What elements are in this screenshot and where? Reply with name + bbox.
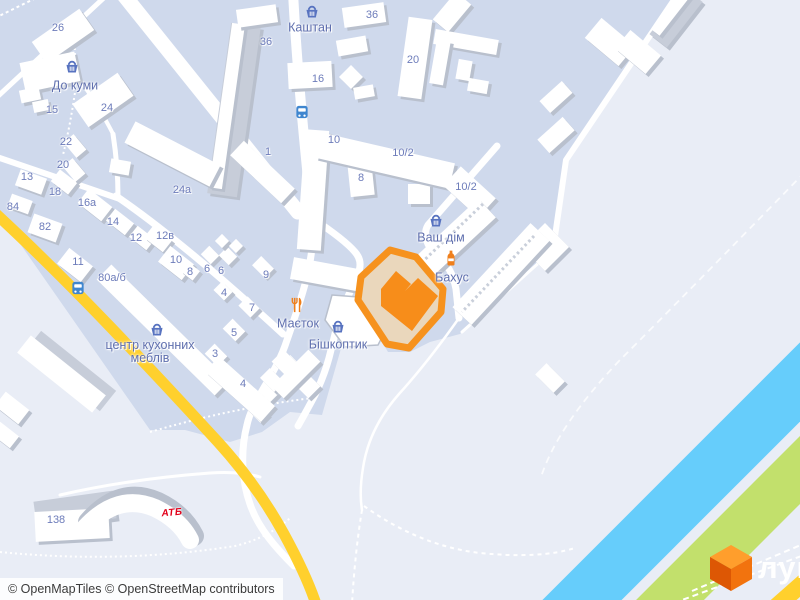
house-number: 18 [49,186,61,198]
lun-logo[interactable]: лун [708,543,800,593]
house-number: 12в [156,230,174,242]
house-number: 20 [57,159,69,171]
house-number: 10 [328,134,340,146]
labels-layer: 263636241516201010/210/282220131816а8482… [0,0,800,600]
house-number: 11 [72,256,83,268]
poi-label-bakhus[interactable]: Бахус [435,272,469,285]
attribution-text: © OpenMapTiles © OpenStreetMap contribut… [8,582,275,596]
restaurant-icon[interactable] [289,297,306,314]
basket-icon[interactable] [304,4,321,21]
lun-cube-icon [708,543,754,593]
house-number: 15 [46,104,58,116]
house-number: 24а [173,184,191,196]
basket-icon[interactable] [149,322,166,339]
house-number: 12 [130,232,142,244]
poi-label-maietok[interactable]: Маєток [277,318,319,331]
house-number: 14 [107,216,119,228]
house-number: 7 [249,302,255,314]
poi-label-do-kumy[interactable]: До куми [52,80,98,93]
lun-logo-text: лун [758,543,800,593]
house-number: 10/2 [455,181,476,193]
house-number: 22 [60,136,72,148]
house-number: 10/2 [392,147,413,159]
poi-label-kashtan[interactable]: Каштан [288,22,332,35]
house-number: 3 [212,348,218,360]
house-number: 1 [265,146,271,158]
house-number: 4 [240,378,246,390]
poi-label-bishkoptyk[interactable]: Бішкоптик [309,339,368,352]
house-number: 6 [218,265,224,277]
house-number: 13 [21,171,33,183]
bus-stop-icon[interactable] [295,105,310,120]
poi-label-vash-dim[interactable]: Ваш дім [417,232,464,245]
house-number: 84 [7,201,19,213]
house-number: 9 [263,269,269,281]
house-number: 36 [366,9,378,21]
atb-store-label: АТБ [161,507,183,520]
house-number: 20 [407,54,419,66]
house-number: 36 [260,36,272,48]
house-number: 26 [52,22,64,34]
bus-stop-icon[interactable] [71,281,86,296]
house-number: 6 [204,263,210,275]
attribution-bar: © OpenMapTiles © OpenStreetMap contribut… [0,578,283,600]
house-number: 80а/б [98,272,126,284]
bottle-icon[interactable] [443,250,460,267]
house-number: 16 [312,73,324,85]
house-number: 8 [358,172,364,184]
map-canvas[interactable]: 263636241516201010/210/282220131816а8482… [0,0,800,600]
house-number: 4 [221,287,227,299]
house-number: 5 [231,327,237,339]
poi-label-kitchen-center[interactable]: центр кухоннихмеблів [106,339,195,365]
house-number: 24 [101,102,113,114]
house-number: 16а [78,197,96,209]
basket-icon[interactable] [428,213,445,230]
house-number: 10 [170,254,182,266]
house-number: 8 [187,266,193,278]
house-number: 82 [39,221,51,233]
basket-icon[interactable] [330,319,347,336]
house-number: 138 [47,514,65,526]
basket-icon[interactable] [64,59,81,76]
